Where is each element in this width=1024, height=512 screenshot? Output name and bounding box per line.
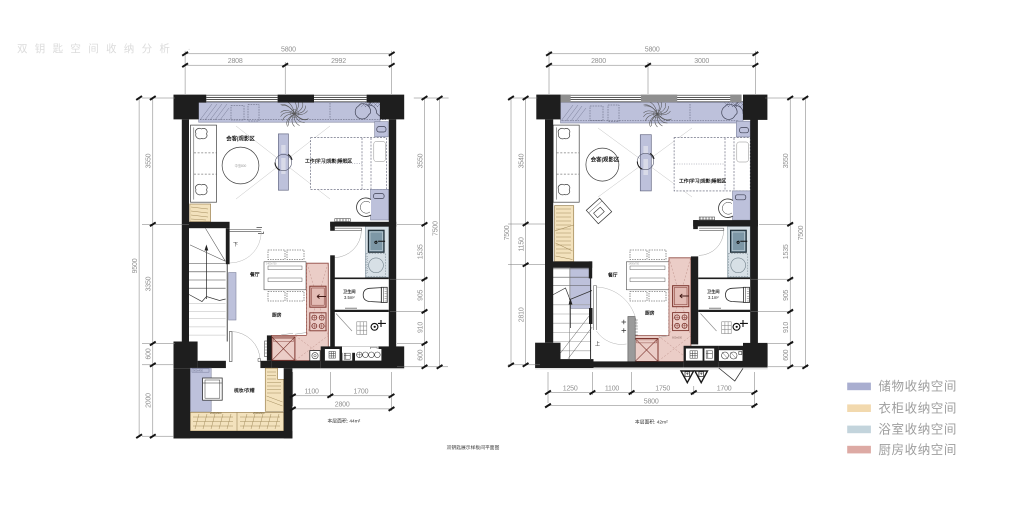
- svg-text:双钥匙空间收纳分析 ·: 双钥匙空间收纳分析 ·: [17, 42, 198, 55]
- svg-text:本层面积: 44m²: 本层面积: 44m²: [328, 418, 361, 425]
- svg-text:1400x700: 1400x700: [629, 263, 640, 266]
- svg-text:中岛800: 中岛800: [235, 163, 247, 168]
- svg-text:600x600: 600x600: [672, 336, 683, 340]
- svg-text:1100: 1100: [304, 389, 319, 396]
- svg-text:1535: 1535: [783, 244, 790, 259]
- svg-text:会客|观影区: 会客|观影区: [226, 135, 255, 143]
- svg-text:1700: 1700: [354, 389, 369, 396]
- svg-text:910: 910: [417, 322, 424, 333]
- svg-text:3000: 3000: [694, 58, 709, 65]
- svg-text:2808: 2808: [228, 58, 243, 65]
- svg-text:3550: 3550: [417, 153, 424, 168]
- svg-text:2000x600: 2000x600: [210, 411, 222, 415]
- svg-text:9500: 9500: [132, 258, 139, 273]
- svg-text:浴室收纳空间: 浴室收纳空间: [878, 422, 957, 437]
- svg-text:工作|学习|观影|睡眠区: 工作|学习|观影|睡眠区: [679, 178, 726, 185]
- svg-text:1150: 1150: [518, 237, 525, 252]
- svg-text:卫生间: 卫生间: [707, 288, 720, 295]
- svg-text:餐厅: 餐厅: [249, 271, 260, 278]
- svg-text:1250: 1250: [563, 385, 578, 392]
- svg-text:3350: 3350: [146, 276, 153, 291]
- svg-text:梳妆/衣帽: 梳妆/衣帽: [233, 387, 255, 394]
- svg-text:储物收纳空间: 储物收纳空间: [878, 379, 957, 394]
- svg-text:本层面积: 42m²: 本层面积: 42m²: [635, 419, 668, 426]
- svg-text:3550: 3550: [146, 153, 153, 168]
- svg-text:600: 600: [783, 349, 790, 360]
- svg-text:1750: 1750: [655, 385, 670, 392]
- svg-text:600: 600: [417, 349, 424, 360]
- svg-text:2000x600: 2000x600: [253, 411, 265, 415]
- svg-text:1535: 1535: [417, 244, 424, 259]
- svg-text:工作|学习|观影|睡眠区: 工作|学习|观影|睡眠区: [305, 158, 352, 165]
- svg-text:905: 905: [417, 289, 424, 300]
- svg-text:3.1m²: 3.1m²: [708, 295, 719, 300]
- svg-text:2800: 2800: [591, 58, 606, 65]
- svg-text:厨房收纳空间: 厨房收纳空间: [878, 442, 957, 457]
- svg-text:5800: 5800: [644, 398, 659, 405]
- svg-text:2992: 2992: [331, 58, 346, 65]
- svg-text:600: 600: [146, 348, 153, 359]
- svg-text:下: 下: [233, 242, 238, 248]
- svg-text:3540: 3540: [518, 153, 525, 168]
- svg-text:7500: 7500: [432, 221, 439, 236]
- svg-text:1100: 1100: [605, 385, 620, 392]
- svg-text:3550: 3550: [783, 153, 790, 168]
- svg-text:1700: 1700: [717, 385, 732, 392]
- svg-text:餐厅: 餐厅: [607, 272, 618, 279]
- svg-text:厨房: 厨房: [272, 312, 282, 319]
- svg-text:2810: 2810: [518, 307, 525, 322]
- svg-text:7500: 7500: [504, 225, 511, 240]
- svg-text:1400x700: 1400x700: [266, 263, 277, 266]
- svg-text:910: 910: [783, 322, 790, 333]
- svg-text:上: 上: [595, 341, 600, 348]
- svg-text:会客|观影区: 会客|观影区: [591, 156, 620, 164]
- svg-text:2800: 2800: [335, 402, 350, 409]
- svg-text:3.5m²: 3.5m²: [344, 295, 355, 300]
- svg-text:5800: 5800: [645, 47, 660, 54]
- svg-text:900x450: 900x450: [193, 369, 204, 373]
- svg-text:厨房: 厨房: [645, 310, 655, 317]
- svg-text:双钥匙展示样板间平面图: 双钥匙展示样板间平面图: [447, 444, 500, 451]
- svg-text:衣柜收纳空间: 衣柜收纳空间: [878, 400, 957, 415]
- svg-text:7500: 7500: [798, 225, 805, 240]
- svg-text:5800: 5800: [281, 47, 296, 54]
- svg-text:卫生间: 卫生间: [343, 288, 356, 295]
- svg-text:905: 905: [783, 289, 790, 300]
- svg-text:2000: 2000: [146, 393, 153, 408]
